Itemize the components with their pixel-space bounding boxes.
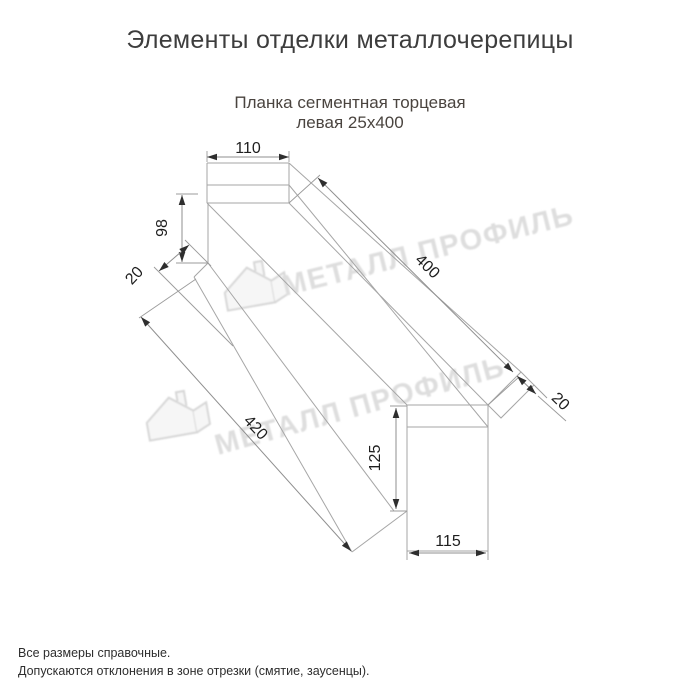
page: Элементы отделки металлочерепицы Планка … <box>0 0 700 700</box>
watermark-upper: МЕТАЛЛ ПРОФИЛЬ <box>220 199 577 310</box>
dimension-lines <box>141 157 536 553</box>
footer-note-line2: Допускаются отклонения в зоне отрезки (с… <box>18 663 678 681</box>
dim-label-near-hem: 20 <box>122 264 147 289</box>
watermark-lower: МЕТАЛЛ ПРОФИЛЬ <box>142 351 508 462</box>
dim-label-side-height: 98 <box>154 219 171 237</box>
house-logo-icon <box>142 387 211 440</box>
dim-label-end-width: 115 <box>435 533 461 550</box>
technical-drawing: МЕТАЛЛ ПРОФИЛЬ МЕТАЛЛ ПРОФИЛЬ <box>0 0 700 700</box>
dim-label-top-face-width: 110 <box>235 140 261 157</box>
footer-note-line1: Все размеры справочные. <box>18 645 678 663</box>
footer-notes: Все размеры справочные. Допускаются откл… <box>18 645 678 680</box>
house-logo-icon <box>220 257 289 310</box>
dim-label-end-height: 125 <box>367 445 384 472</box>
dim-label-far-hem: 20 <box>548 389 573 414</box>
